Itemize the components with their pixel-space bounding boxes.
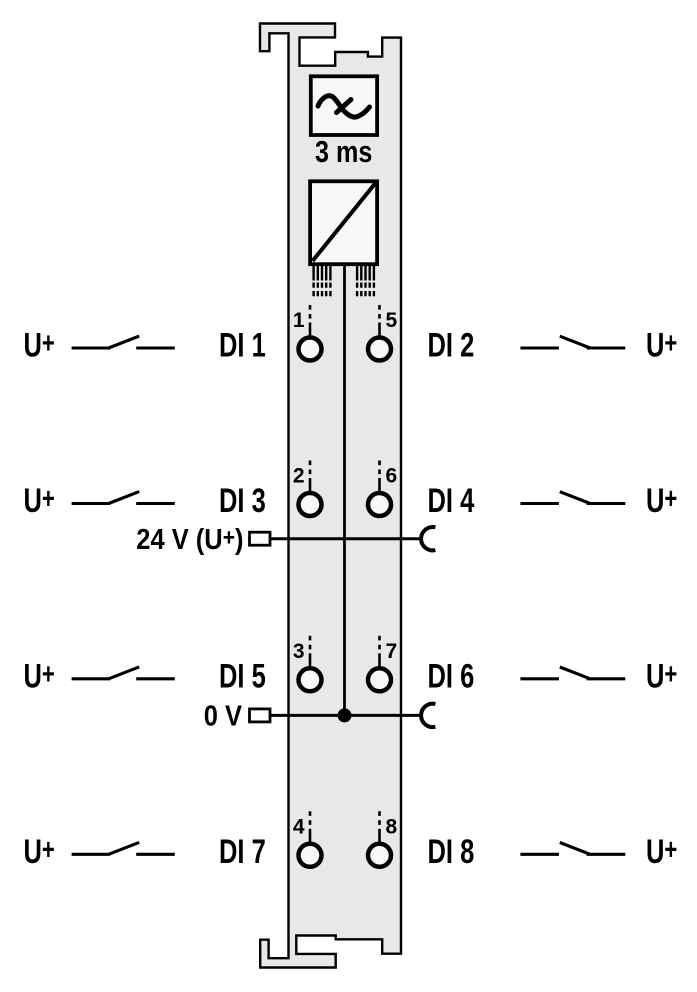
svg-text:DI 5: DI 5	[219, 658, 266, 695]
svg-text:DI 3: DI 3	[219, 483, 266, 520]
svg-text:U+: U+	[24, 481, 55, 520]
svg-text:DI 7: DI 7	[219, 833, 266, 870]
svg-text:0 V: 0 V	[204, 699, 243, 732]
svg-text:U+: U+	[646, 326, 677, 365]
svg-text:3 ms: 3 ms	[315, 135, 372, 169]
svg-text:U+: U+	[24, 832, 55, 871]
svg-text:DI 1: DI 1	[219, 327, 266, 364]
svg-text:U+: U+	[646, 832, 677, 871]
svg-text:6: 6	[386, 465, 398, 488]
svg-text:DI 6: DI 6	[428, 658, 475, 695]
svg-text:U+: U+	[646, 481, 677, 520]
svg-text:4: 4	[293, 815, 305, 838]
svg-text:U+: U+	[24, 326, 55, 365]
svg-text:5: 5	[386, 309, 398, 332]
svg-text:1: 1	[293, 309, 305, 332]
svg-text:U+: U+	[646, 657, 677, 696]
svg-text:DI 2: DI 2	[428, 327, 475, 364]
svg-text:DI 8: DI 8	[428, 833, 475, 870]
svg-text:24 V (U+): 24 V (U+)	[136, 522, 243, 555]
svg-text:3: 3	[293, 640, 305, 663]
svg-text:8: 8	[386, 815, 398, 838]
svg-text:7: 7	[386, 640, 398, 663]
svg-text:DI 4: DI 4	[428, 483, 475, 520]
svg-text:2: 2	[293, 465, 305, 488]
svg-text:U+: U+	[24, 657, 55, 696]
